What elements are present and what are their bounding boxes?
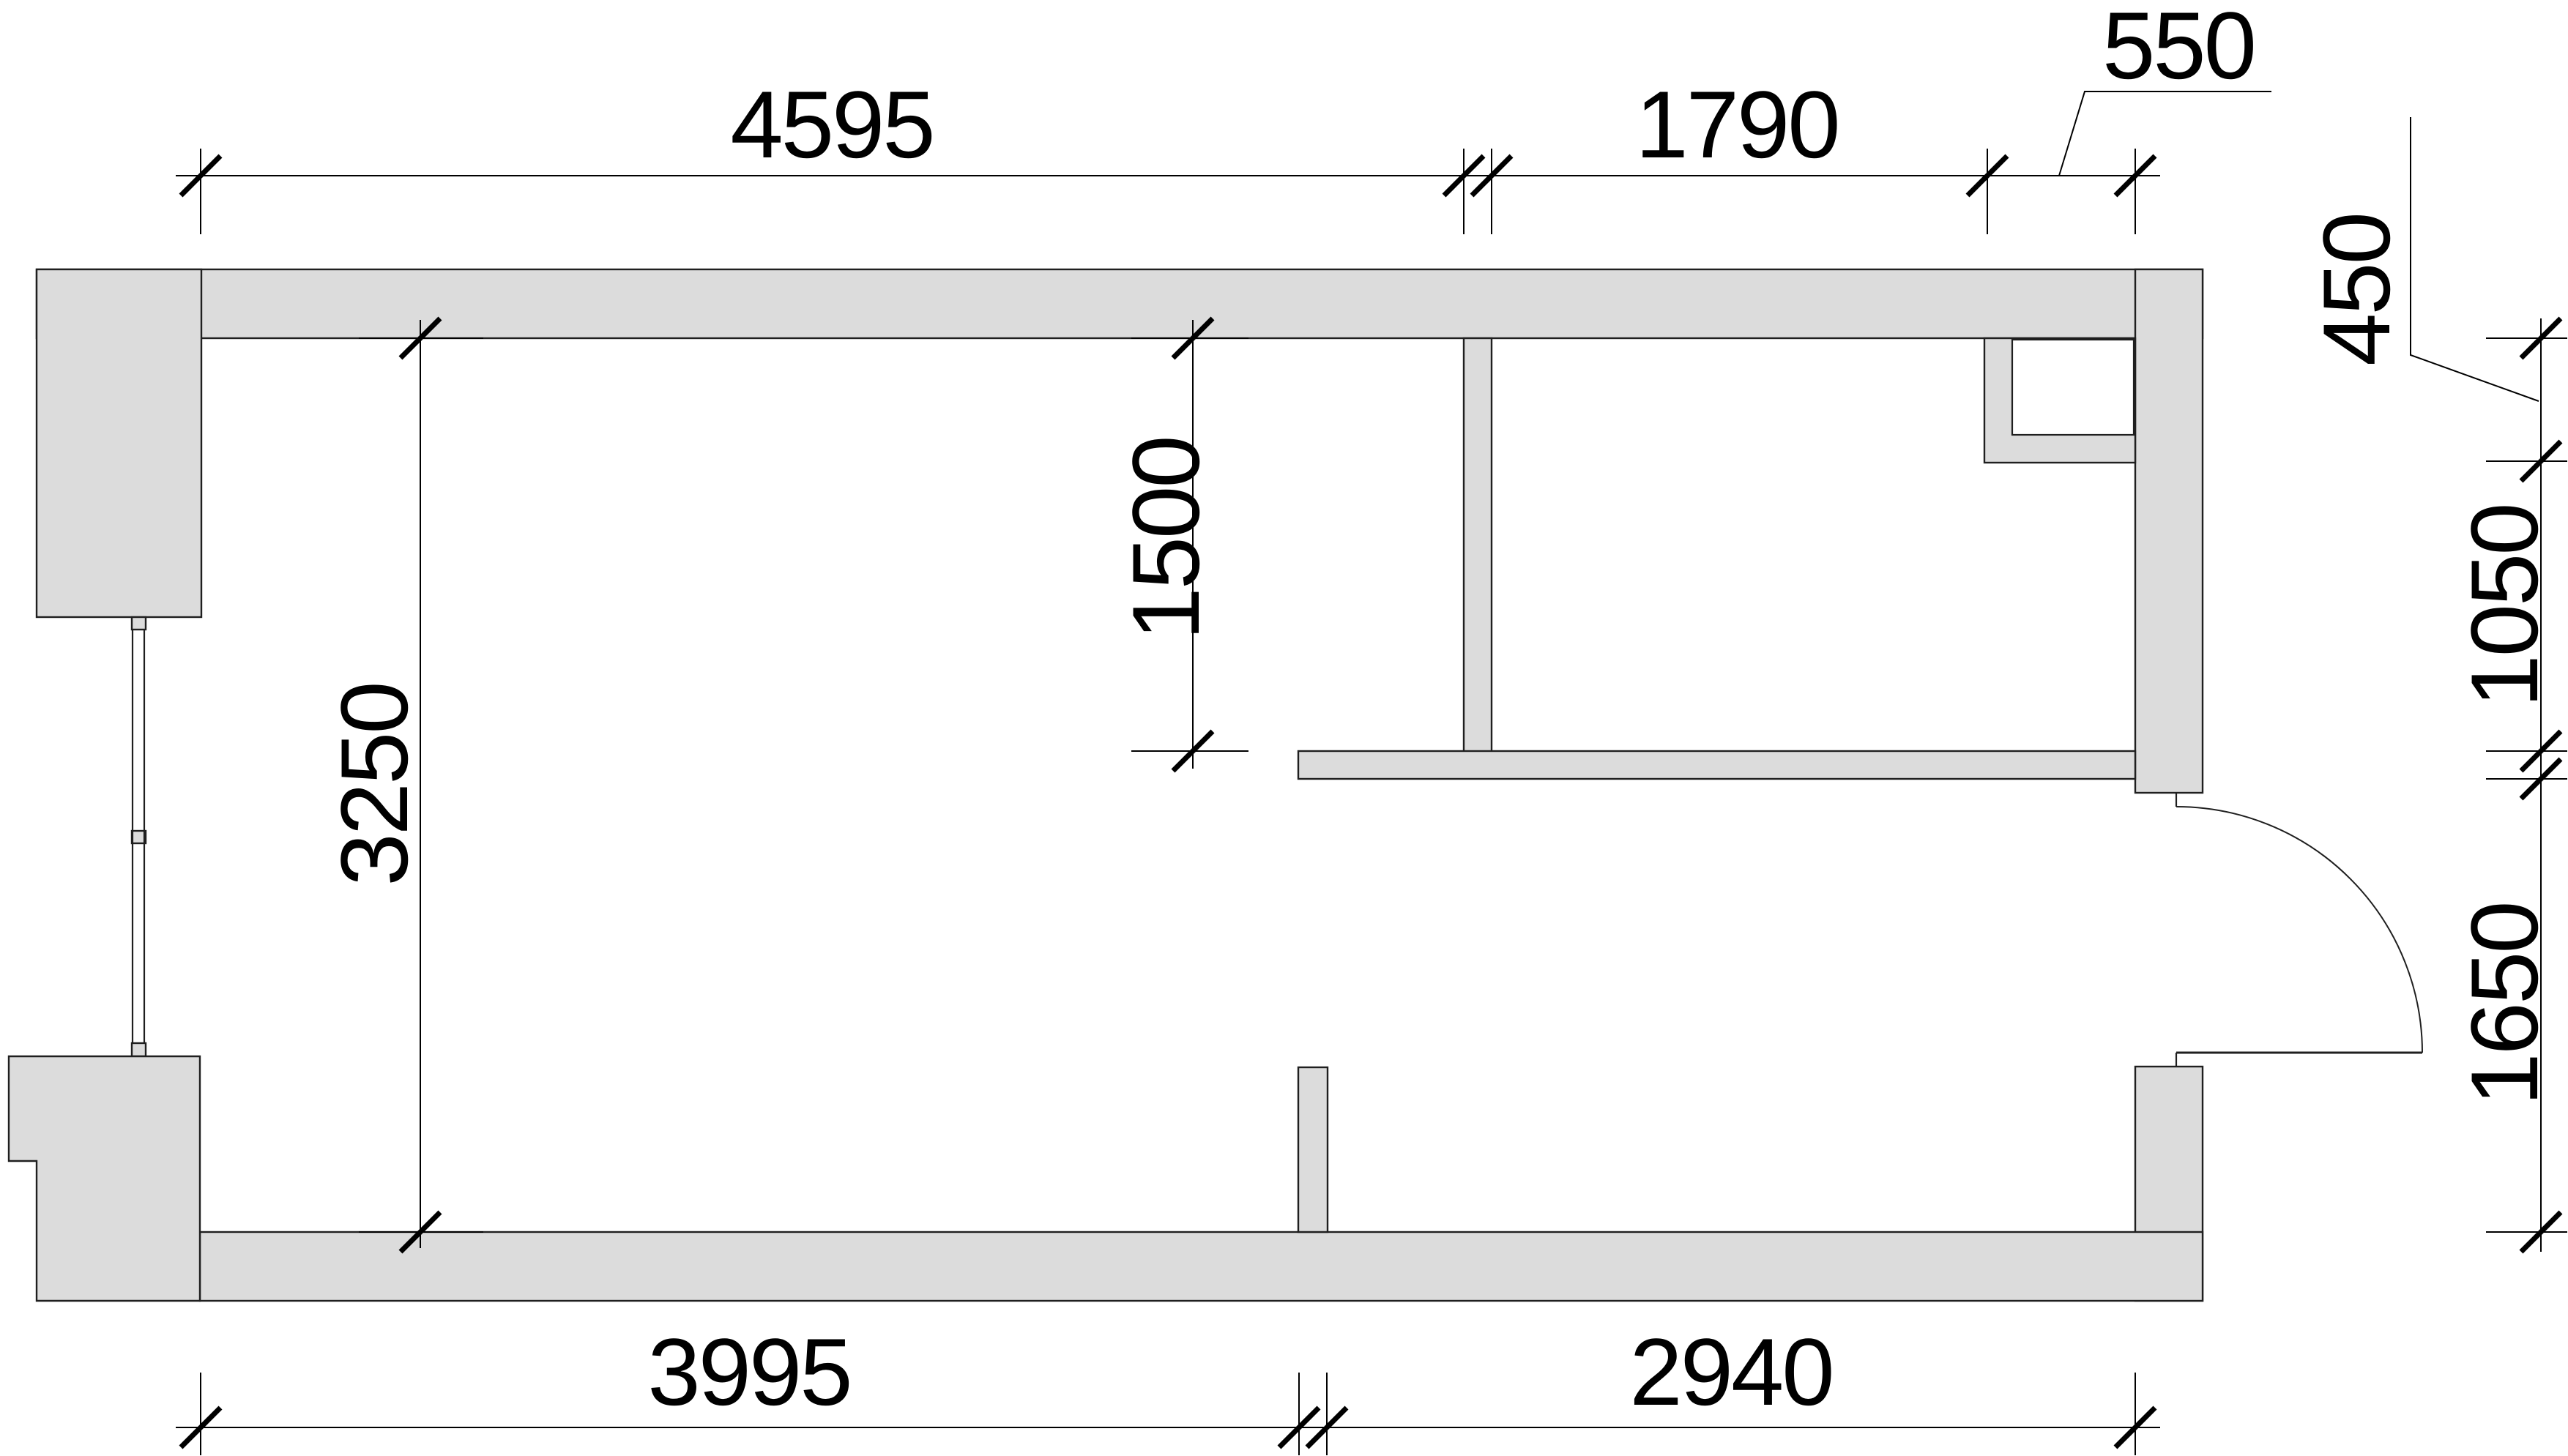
partition-kitchen — [1464, 338, 1492, 754]
dimension-label: 1500 — [1112, 437, 1219, 640]
leader-450-polyline — [2411, 117, 2539, 401]
leader-550-polyline — [2059, 92, 2271, 176]
wall-bottom — [200, 1232, 2203, 1301]
window-jamb-bottom — [132, 1043, 146, 1056]
wall-left-top-block — [37, 269, 201, 617]
wall-top — [37, 269, 2203, 338]
entry-door-swing-arc — [2176, 807, 2422, 1053]
leader-450: 450 — [2303, 117, 2539, 401]
dimension-label: 450 — [2303, 214, 2410, 366]
floor-plan-svg: 45951790399529401050165032501500550450 — [0, 0, 2568, 1456]
openings-layer — [133, 630, 2422, 1067]
dim-chain-top: 45951790 — [176, 71, 2160, 234]
wall-bottom-left-block — [9, 1056, 200, 1301]
dimension-label: 2940 — [1629, 1318, 1832, 1425]
leader-550: 550 — [2059, 0, 2271, 176]
wall-hallway — [1298, 751, 2135, 779]
dim-chain-right: 10501650 — [2451, 318, 2567, 1252]
dimension-label: 3250 — [321, 683, 428, 886]
dim-room-height: 3250 — [321, 318, 483, 1252]
dimension-label: 4595 — [730, 71, 933, 178]
dimension-label: 1790 — [1635, 71, 1838, 178]
wall-stub-bottom — [1298, 1067, 1328, 1232]
dimension-label: 550 — [2102, 0, 2255, 99]
dimension-label: 3995 — [647, 1318, 850, 1425]
dim-kitchen-depth: 1500 — [1112, 318, 1248, 771]
drawing-sheet: 45951790399529401050165032501500550450 — [0, 0, 2568, 1456]
wall-right-upper — [2135, 269, 2203, 793]
dimension-label: 1650 — [2451, 903, 2558, 1105]
shaft-inner — [2012, 340, 2134, 435]
dim-chain-bottom: 39952940 — [176, 1318, 2160, 1455]
window-jamb-top — [132, 617, 146, 630]
dimension-label: 1050 — [2451, 504, 2558, 707]
